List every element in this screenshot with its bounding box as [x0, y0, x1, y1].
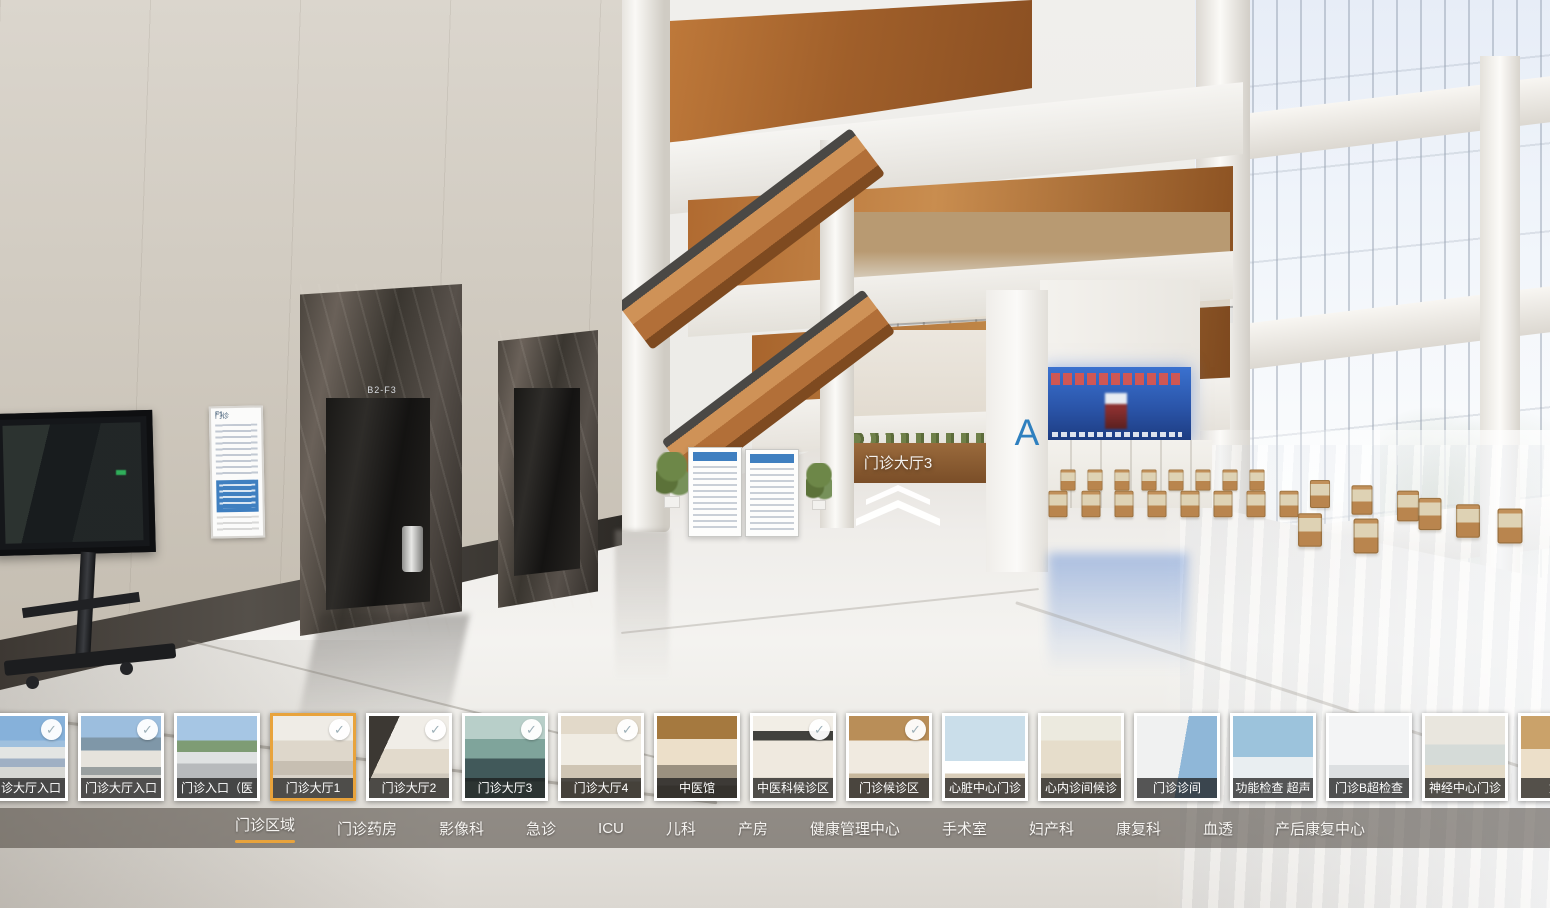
- thumbnail-label: 门诊B超检查: [1329, 778, 1409, 798]
- chair: [1298, 513, 1322, 547]
- led-floor-reflection: [1048, 553, 1188, 673]
- thumbnail-7[interactable]: 中医馆: [654, 713, 740, 801]
- directory-floor-label: F1: [215, 411, 223, 418]
- nav-item-2[interactable]: 影像科: [439, 818, 484, 839]
- thumbnail-15[interactable]: 神经中心门诊: [1422, 713, 1508, 801]
- thumbnail-label: 门诊候诊区: [849, 778, 929, 798]
- plant-pot: [664, 496, 680, 508]
- check-icon: ✓: [521, 719, 542, 740]
- thumbnail-label: 中医馆: [657, 778, 737, 798]
- check-icon: ✓: [329, 719, 350, 740]
- chair: [1049, 491, 1068, 518]
- nav-item-6[interactable]: 产房: [738, 818, 768, 839]
- potted-plant: [806, 463, 832, 505]
- check-icon: ✓: [905, 719, 926, 740]
- chair: [1148, 491, 1167, 518]
- thumbnail-9[interactable]: ✓门诊候诊区: [846, 713, 932, 801]
- thumbnail-label: 心内诊间候诊: [1041, 778, 1121, 798]
- directory-text-lines: [215, 424, 258, 477]
- nav-item-10[interactable]: 康复科: [1116, 818, 1161, 839]
- thumbnail-label: 门诊大厅2: [369, 778, 449, 798]
- thumbnail-label: 门诊大厅入口: [81, 778, 161, 798]
- thumbnail-0[interactable]: ✓门诊大厅入口: [0, 713, 68, 801]
- thumbnail-3[interactable]: ✓门诊大厅1: [270, 713, 356, 801]
- chair: [1456, 504, 1480, 538]
- thumbnail-16[interactable]: 妇产: [1518, 713, 1550, 801]
- potted-plant: [656, 452, 688, 502]
- tv-screen-glare: [2, 422, 143, 544]
- elevator-door: [326, 398, 430, 610]
- scene-category-nav: 门诊区域门诊药房影像科急诊ICU儿科产房健康管理中心手术室妇产科康复科血透产后康…: [0, 808, 1550, 848]
- thumbnail-10[interactable]: 心脏中心门诊: [942, 713, 1028, 801]
- nav-item-4[interactable]: ICU: [598, 820, 624, 837]
- thumbnail-1[interactable]: ✓门诊大厅入口: [78, 713, 164, 801]
- panorama-viewer[interactable]: A B2-F3 门诊 F1 门诊大厅3: [0, 0, 1550, 908]
- thumbnail-label: 中医科候诊区: [753, 778, 833, 798]
- thumbnail-label: 门诊大厅1: [273, 778, 353, 798]
- thumbnail-label: 门诊诊间: [1137, 778, 1217, 798]
- trash-bin: [402, 526, 423, 572]
- hotspot-label: 门诊大厅3: [836, 452, 960, 473]
- thumbnail-6[interactable]: ✓门诊大厅4: [558, 713, 644, 801]
- elevator-floor-sign: B2-F3: [352, 385, 412, 395]
- nav-item-3[interactable]: 急诊: [526, 818, 556, 839]
- chair: [1354, 519, 1379, 554]
- check-icon: ✓: [425, 719, 446, 740]
- check-icon: ✓: [137, 719, 158, 740]
- nav-item-5[interactable]: 儿科: [666, 818, 696, 839]
- thumbnail-label: 门诊大厅入口: [0, 778, 65, 798]
- thumbnail-label: 功能检查 超声: [1233, 778, 1313, 798]
- chair: [1352, 485, 1373, 514]
- thumbnail-14[interactable]: 门诊B超检查: [1326, 713, 1412, 801]
- chair: [1088, 470, 1103, 491]
- chair: [1397, 491, 1419, 522]
- directory-board: 门诊 F1: [209, 406, 265, 539]
- directory-footer-lines: [217, 516, 259, 533]
- thumbnail-label: 神经中心门诊: [1425, 778, 1505, 798]
- plant-pot: [812, 500, 826, 510]
- chair: [1419, 498, 1442, 530]
- nav-item-9[interactable]: 妇产科: [1029, 818, 1074, 839]
- zone-letter-sign: A: [1004, 412, 1050, 454]
- thumbnail-label: 门诊大厅4: [561, 778, 641, 798]
- exit-sign-reflection: [116, 470, 126, 475]
- directory-highlight-block: [216, 480, 259, 513]
- chair: [1169, 470, 1184, 491]
- nav-item-0[interactable]: 门诊区域: [235, 814, 295, 843]
- chair: [1250, 470, 1265, 491]
- chair: [1082, 491, 1101, 518]
- nav-item-7[interactable]: 健康管理中心: [810, 818, 900, 839]
- tv-stand-wheel: [120, 662, 133, 675]
- thumbnail-label: 门诊大厅3: [465, 778, 545, 798]
- chair: [1061, 470, 1076, 491]
- elevator-door: [514, 388, 580, 576]
- thumbnail-5[interactable]: ✓门诊大厅3: [462, 713, 548, 801]
- thumbnail-2[interactable]: 门诊入口（医: [174, 713, 260, 801]
- thumbnail-11[interactable]: 心内诊间候诊: [1038, 713, 1124, 801]
- info-poster-stand: [688, 447, 742, 537]
- chair: [1142, 470, 1157, 491]
- check-icon: ✓: [617, 719, 638, 740]
- chair: [1196, 470, 1211, 491]
- check-icon: ✓: [809, 719, 830, 740]
- nav-item-11[interactable]: 血透: [1203, 818, 1233, 839]
- chair: [1247, 491, 1266, 518]
- chair: [1115, 491, 1134, 518]
- chair: [1498, 509, 1523, 544]
- column-floor-reflection: [615, 530, 669, 680]
- thumbnail-label: 心脏中心门诊: [945, 778, 1025, 798]
- nav-item-12[interactable]: 产后康复中心: [1275, 818, 1365, 839]
- thumbnail-13[interactable]: 功能检查 超声: [1230, 713, 1316, 801]
- nav-item-8[interactable]: 手术室: [942, 818, 987, 839]
- hotspot-outpatient-hall-3[interactable]: 门诊大厅3: [836, 452, 960, 533]
- thumbnail-4[interactable]: ✓门诊大厅2: [366, 713, 452, 801]
- nav-item-1[interactable]: 门诊药房: [337, 818, 397, 839]
- chair: [1115, 470, 1130, 491]
- chair: [1223, 470, 1238, 491]
- led-screen-headline: [1051, 373, 1183, 385]
- thumbnail-12[interactable]: 门诊诊间: [1134, 713, 1220, 801]
- chair: [1310, 480, 1330, 508]
- chevron-up-double-icon: [836, 485, 960, 533]
- info-poster-stand: [745, 449, 799, 537]
- thumbnail-strip: ✓门诊大厅入口✓门诊大厅入口门诊入口（医✓门诊大厅1✓门诊大厅2✓门诊大厅3✓门…: [0, 713, 1550, 801]
- chair: [1214, 491, 1233, 518]
- thumbnail-label: 妇产: [1521, 778, 1550, 798]
- thumbnail-label: 门诊入口（医: [177, 778, 257, 798]
- check-icon: ✓: [41, 719, 62, 740]
- chair: [1280, 491, 1299, 518]
- chair: [1181, 491, 1200, 518]
- led-screen-caption: [1052, 432, 1182, 437]
- tv-stand-wheel: [26, 676, 39, 689]
- thumbnail-8[interactable]: ✓中医科候诊区: [750, 713, 836, 801]
- led-screen-speaker: [1105, 393, 1127, 429]
